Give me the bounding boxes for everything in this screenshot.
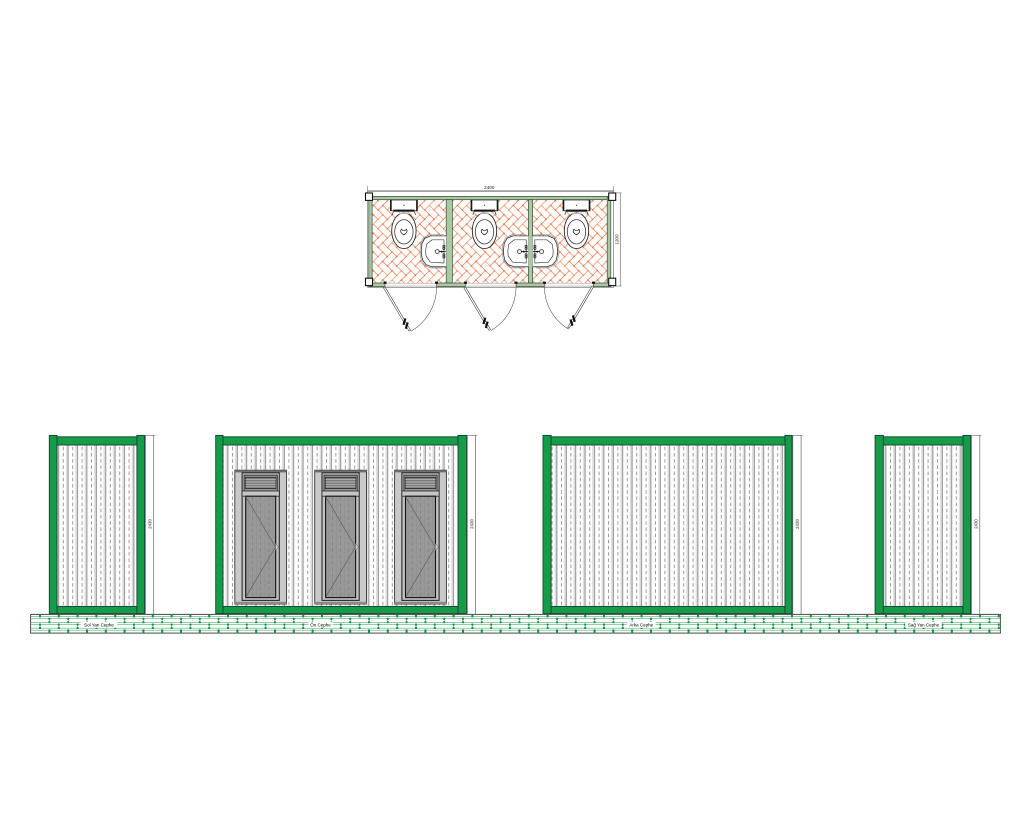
svg-text:2430: 2430 (974, 519, 979, 529)
svg-text:Ön Cephe: Ön Cephe (310, 621, 331, 627)
svg-text:Sağ Yan Cephe: Sağ Yan Cephe (908, 622, 940, 627)
svg-text:2400: 2400 (484, 185, 495, 190)
svg-text:2430: 2430 (147, 519, 152, 529)
svg-text:1200: 1200 (614, 234, 619, 245)
svg-text:Arka Cephe: Arka Cephe (629, 622, 653, 627)
svg-text:Sol Yan Cephe: Sol Yan Cephe (84, 622, 114, 627)
svg-text:2430: 2430 (469, 519, 474, 529)
svg-text:2430: 2430 (795, 519, 800, 529)
